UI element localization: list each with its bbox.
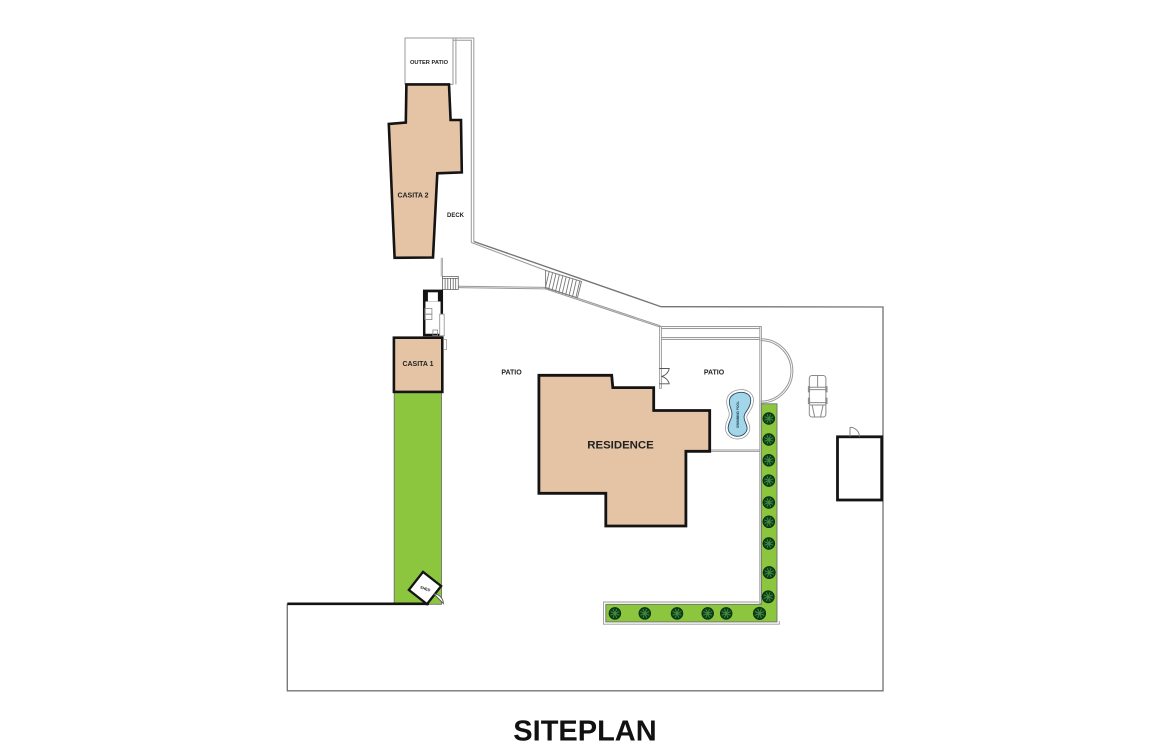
- svg-text:OUTER PATIO: OUTER PATIO: [410, 60, 449, 66]
- svg-text:PATIO: PATIO: [501, 370, 522, 377]
- svg-text:DECK: DECK: [447, 213, 465, 219]
- svg-text:RESIDENCE: RESIDENCE: [587, 440, 654, 452]
- svg-text:SITEPLAN: SITEPLAN: [513, 716, 656, 748]
- svg-text:PATIO: PATIO: [704, 370, 725, 377]
- svg-text:CASITA 2: CASITA 2: [397, 193, 428, 200]
- svg-text:CASITA 1: CASITA 1: [402, 361, 433, 368]
- svg-text:SWIMMING POOL: SWIMMING POOL: [736, 401, 740, 428]
